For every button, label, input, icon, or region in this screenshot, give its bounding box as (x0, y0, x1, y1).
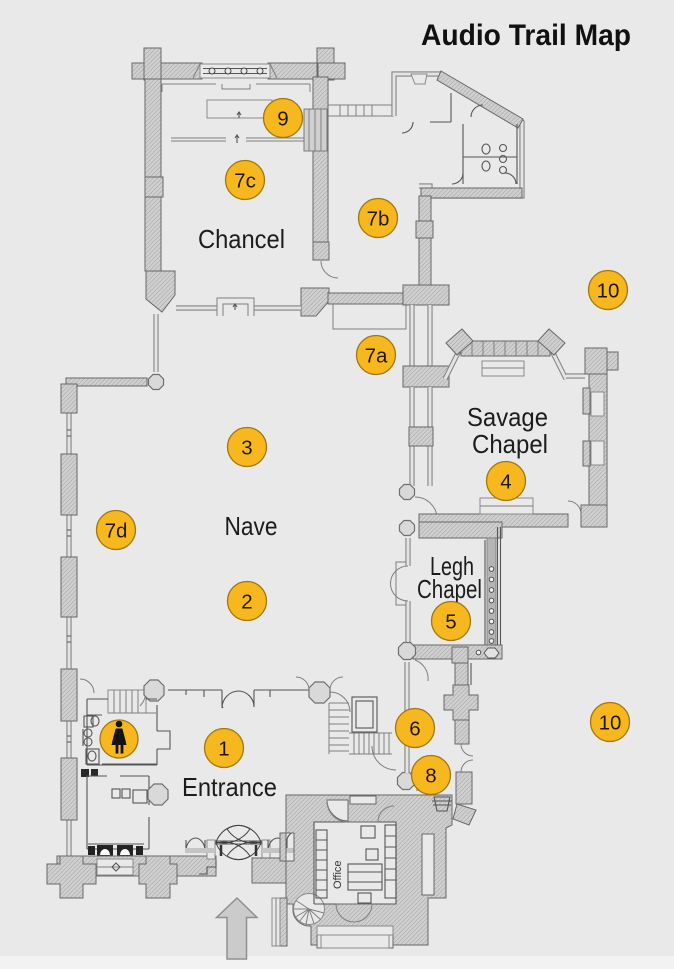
svg-text:10: 10 (599, 712, 622, 735)
svg-text:4: 4 (500, 471, 511, 494)
svg-text:10: 10 (597, 280, 620, 303)
svg-text:Chancel: Chancel (198, 224, 285, 254)
svg-text:Chapel: Chapel (417, 574, 482, 604)
svg-text:5: 5 (445, 611, 456, 634)
svg-text:6: 6 (409, 718, 420, 741)
svg-text:1: 1 (218, 738, 229, 761)
svg-text:Entrance: Entrance (182, 772, 277, 802)
svg-text:9: 9 (277, 108, 288, 131)
svg-text:7c: 7c (234, 170, 256, 193)
svg-text:Office: Office (332, 860, 344, 889)
svg-text:7b: 7b (367, 208, 390, 231)
svg-text:7a: 7a (365, 345, 388, 368)
svg-text:3: 3 (241, 437, 252, 460)
svg-text:Nave: Nave (225, 511, 278, 541)
svg-text:7d: 7d (105, 520, 128, 543)
svg-text:8: 8 (425, 765, 436, 788)
svg-text:Savage: Savage (467, 402, 548, 432)
svg-text:Chapel: Chapel (472, 429, 548, 459)
svg-text:Audio Trail Map: Audio Trail Map (421, 19, 631, 52)
svg-text:2: 2 (241, 591, 252, 614)
